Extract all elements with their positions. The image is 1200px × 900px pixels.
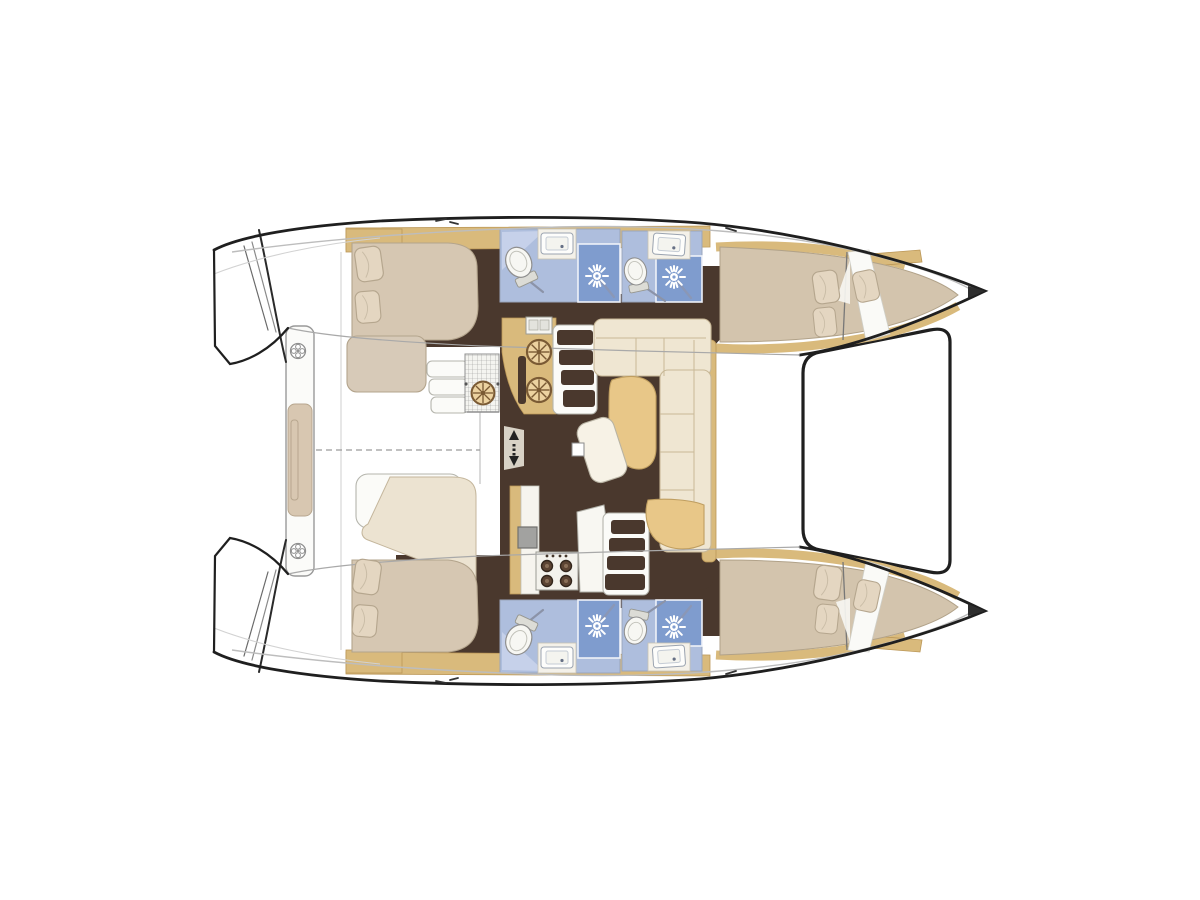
galley-sink-round-icon xyxy=(527,340,551,364)
galley-gray-appliance xyxy=(518,527,537,548)
stove-burner-icon xyxy=(542,561,553,572)
trampoline xyxy=(803,329,950,573)
door-dash xyxy=(513,449,516,452)
pillow-icon xyxy=(352,604,379,638)
cockpit-step xyxy=(429,379,468,395)
stair-tread xyxy=(557,330,593,345)
washbasin-icon xyxy=(652,645,685,668)
mast-post xyxy=(572,443,584,456)
pillow-icon xyxy=(354,245,384,282)
stove-knob xyxy=(565,555,568,558)
appliance-inner xyxy=(540,320,549,330)
stove-knob xyxy=(559,555,562,558)
galley-sink-round-icon xyxy=(527,378,551,402)
washbasin-icon xyxy=(541,647,573,668)
stove-knob xyxy=(552,555,555,558)
cockpit-grill-burner-icon xyxy=(472,382,495,405)
catamaran-floorplan xyxy=(0,0,1200,900)
deck-fitting-icon xyxy=(291,344,306,359)
washbasin-icon xyxy=(652,233,685,256)
stove-knob xyxy=(546,555,549,558)
pillow-icon xyxy=(355,290,382,324)
stair-tread xyxy=(611,520,645,534)
stove-burner-icon xyxy=(561,561,572,572)
catamaran-floorplan-page xyxy=(0,0,1200,900)
stair-tread xyxy=(559,350,593,365)
pillow-icon xyxy=(813,564,843,601)
galley-board-slot xyxy=(518,356,526,404)
pillow-icon xyxy=(813,306,838,337)
stair-tread xyxy=(561,370,594,385)
stove-burner-icon xyxy=(542,576,553,587)
deck-fitting-icon xyxy=(291,544,306,559)
pillow-icon xyxy=(352,558,382,595)
stair-tread xyxy=(563,390,595,407)
port-fwd-shower-floor xyxy=(656,256,702,302)
washbasin-icon xyxy=(541,233,573,254)
sofa-forward-arm xyxy=(594,319,711,376)
stair-tread xyxy=(607,556,645,570)
port-aft-bench xyxy=(347,336,426,392)
stair-tread xyxy=(605,574,645,590)
stove-burner-icon xyxy=(561,576,572,587)
door-dash xyxy=(513,453,516,456)
stair-tread xyxy=(609,538,645,552)
door-dash xyxy=(513,444,516,447)
pillow-icon xyxy=(815,603,840,634)
appliance-inner xyxy=(529,320,538,330)
cockpit-step xyxy=(431,397,468,413)
cockpit-step xyxy=(427,361,468,377)
pillow-icon xyxy=(812,269,841,304)
